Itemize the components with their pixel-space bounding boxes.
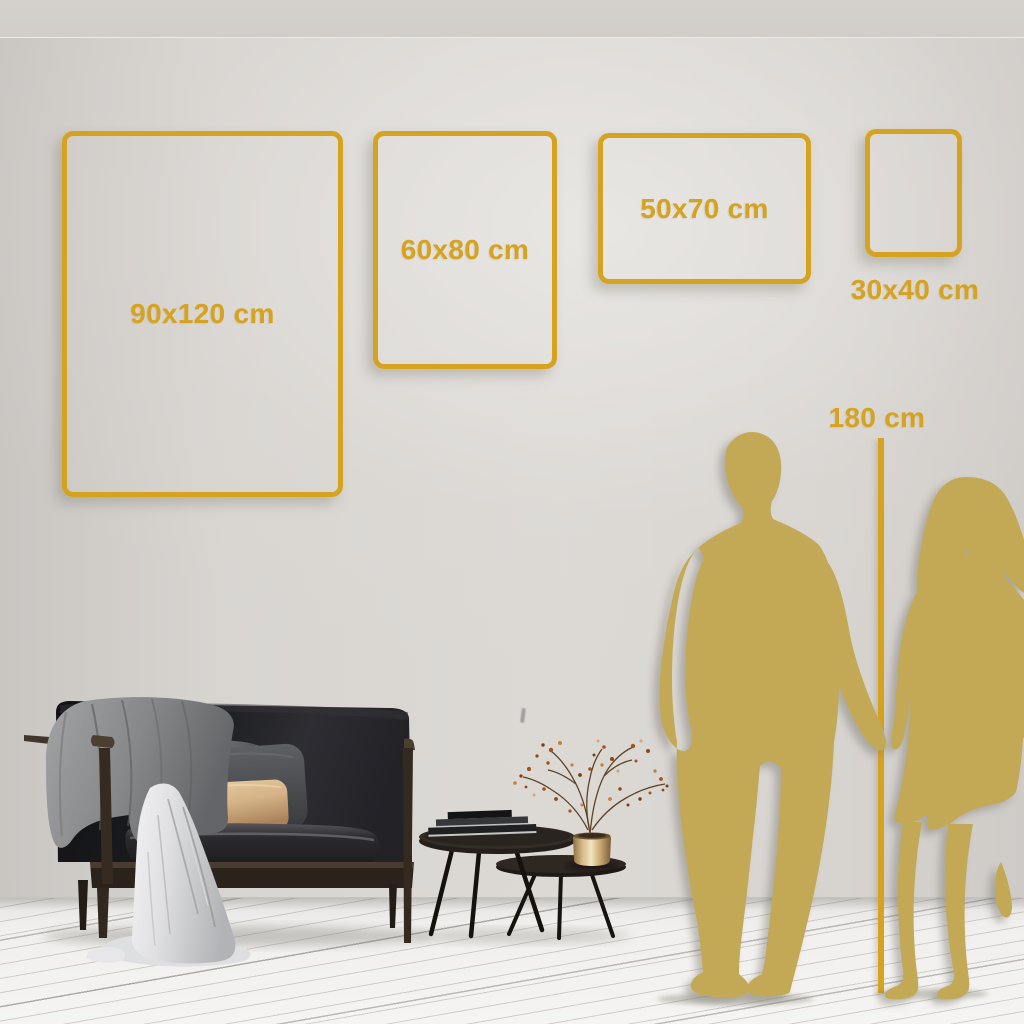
furniture-illustration xyxy=(0,690,680,1024)
size-frame-60x80: 60x80 cm xyxy=(373,131,557,369)
size-guide-scene: 90x120 cm 60x80 cm 50x70 cm 30x40 cm 180… xyxy=(0,0,1024,1024)
ceiling xyxy=(0,0,1024,38)
couple-silhouette xyxy=(630,420,1024,1024)
size-label-60x80: 60x80 cm xyxy=(401,234,530,266)
nesting-coffee-tables xyxy=(419,809,626,938)
sofa xyxy=(24,697,415,967)
man-silhouette xyxy=(660,432,887,997)
books-stack xyxy=(428,809,537,837)
size-label-30x40: 30x40 cm xyxy=(830,274,1000,306)
woman-silhouette xyxy=(885,477,1024,999)
size-frame-30x40 xyxy=(865,129,962,257)
size-label-50x70: 50x70 cm xyxy=(640,193,769,225)
size-frame-50x70: 50x70 cm xyxy=(598,133,811,284)
size-label-90x120: 90x120 cm xyxy=(130,298,274,330)
size-frame-90x120: 90x120 cm xyxy=(62,131,343,497)
